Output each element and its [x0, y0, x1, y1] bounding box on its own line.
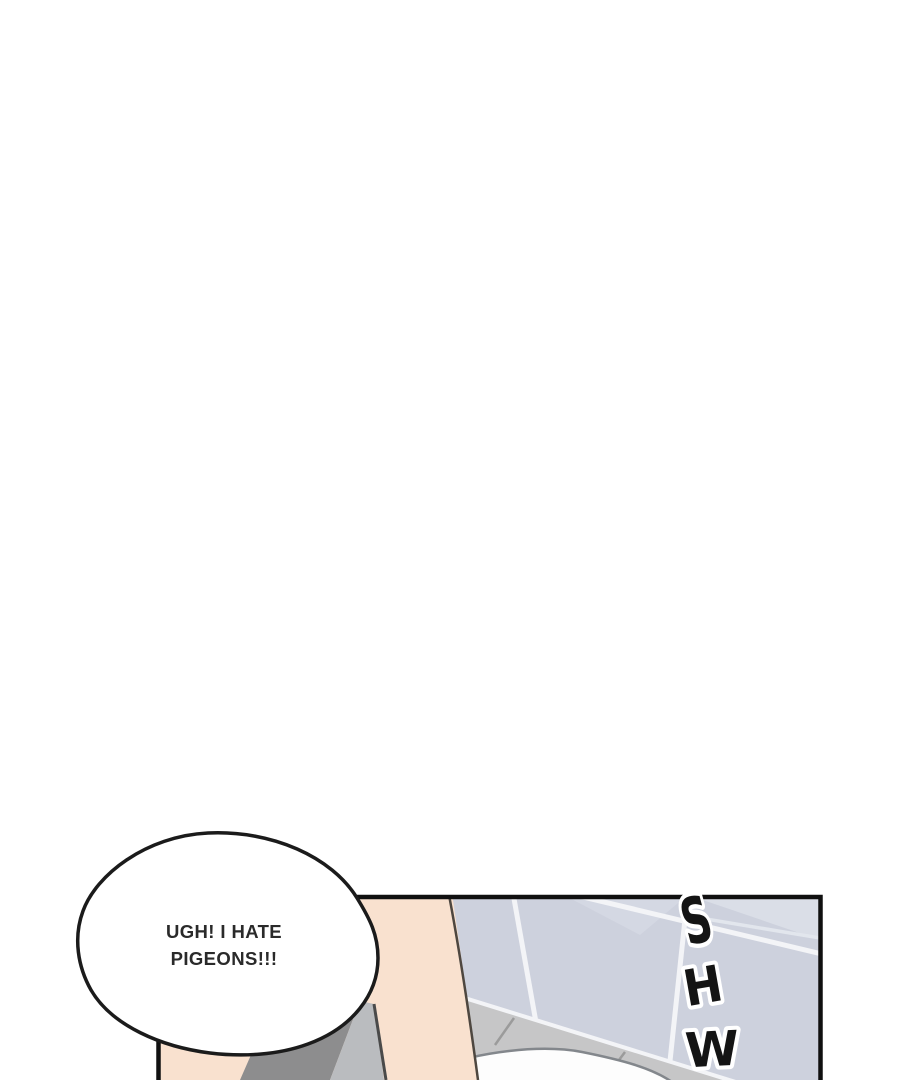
sfx-letter-w: W	[684, 1021, 741, 1079]
speech-bubble-text-line-2: PIGEONS!!!	[171, 948, 278, 969]
speech-bubble: UGH! I HATE PIGEONS!!!	[78, 833, 378, 1055]
speech-bubble-text-line-1: UGH! I HATE	[166, 921, 282, 942]
speech-bubble-shape	[78, 833, 378, 1055]
comic-page-art: UGH! I HATE PIGEONS!!! S H W	[0, 0, 900, 1080]
page-background: UGH! I HATE PIGEONS!!! S H W	[0, 0, 900, 1080]
